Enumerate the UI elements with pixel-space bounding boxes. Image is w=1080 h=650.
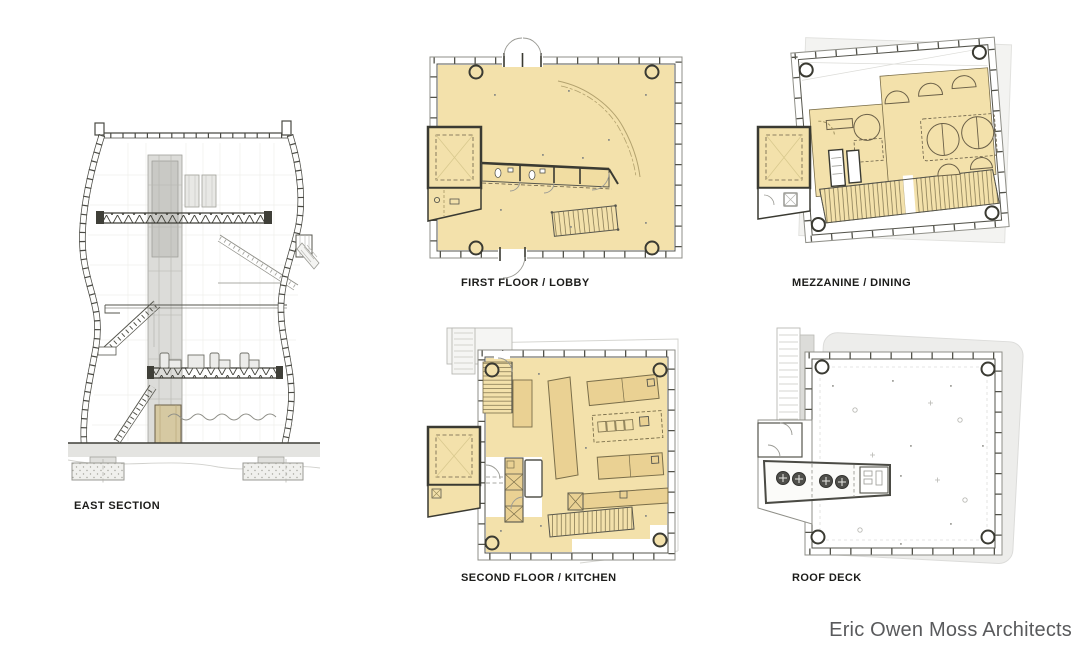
section-truss-upper xyxy=(96,211,272,224)
elevator-shaft xyxy=(428,427,480,485)
mezzanine-plan-drawing xyxy=(750,15,1030,270)
elevator-shaft xyxy=(758,127,810,188)
section-roof-band xyxy=(95,121,291,138)
section-ground xyxy=(68,443,320,484)
firm-name-watermark: Eric Owen Moss Architects xyxy=(829,619,1072,642)
roof-deck-caption: ROOF DECK xyxy=(792,572,862,584)
section-right-wall xyxy=(281,135,301,443)
elevator-shaft xyxy=(428,127,481,188)
east-section-caption: EAST SECTION xyxy=(74,500,160,512)
dumbwaiter-shaft xyxy=(525,460,542,497)
section-core-shaft xyxy=(148,155,182,443)
plan-frame xyxy=(805,352,1002,555)
east-section-drawing xyxy=(68,115,323,510)
kitchen-island-3 xyxy=(597,453,663,479)
first-floor-svg xyxy=(420,35,690,280)
second-floor-plan-drawing xyxy=(420,325,700,575)
east-section-svg xyxy=(68,115,323,510)
kitchen-counter-block xyxy=(513,380,532,427)
roof-deck-plan-drawing xyxy=(750,325,1030,575)
mezzanine-rotated-plan xyxy=(791,37,1009,242)
service-room xyxy=(428,485,480,517)
rear-door xyxy=(498,247,527,278)
mechanical-equipment xyxy=(764,461,890,503)
cabinet-column xyxy=(505,458,523,522)
second-floor-caption: SECOND FLOOR / KITCHEN xyxy=(461,572,616,584)
first-floor-plan-drawing xyxy=(420,35,690,280)
kitchen-island-2 xyxy=(592,411,663,443)
entry-double-door xyxy=(502,38,543,67)
first-floor-caption: FIRST FLOOR / LOBBY xyxy=(461,277,590,289)
mezzanine-svg xyxy=(750,15,1030,270)
second-floor-svg xyxy=(420,325,700,575)
roof-deck-svg xyxy=(750,325,1030,575)
section-left-wall xyxy=(82,135,102,443)
sheet-canvas: EAST SECTION FIRST FLOOR / LOBBY MEZZANI… xyxy=(0,0,1080,650)
roof-vestibule xyxy=(758,423,802,457)
section-window-boxes xyxy=(185,175,216,207)
mezzanine-caption: MEZZANINE / DINING xyxy=(792,277,911,289)
section-right-box xyxy=(296,235,319,269)
